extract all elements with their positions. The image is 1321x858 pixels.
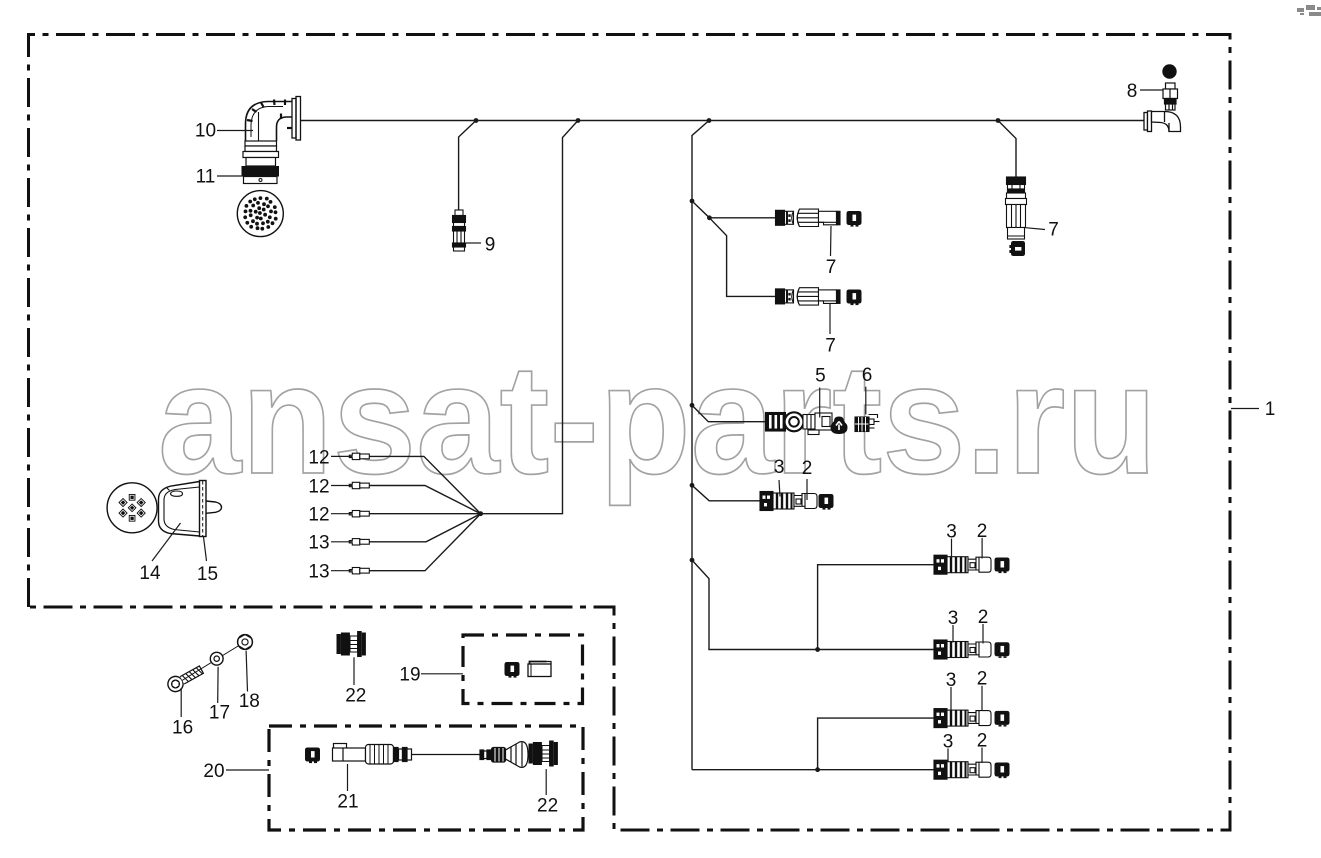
svg-text:15: 15 — [197, 564, 218, 585]
svg-text:2: 2 — [978, 607, 989, 628]
svg-text:17: 17 — [209, 703, 230, 724]
svg-text:18: 18 — [239, 691, 260, 712]
svg-text:7: 7 — [1048, 220, 1059, 241]
svg-text:14: 14 — [139, 563, 161, 584]
svg-text:3: 3 — [943, 732, 954, 753]
svg-text:11: 11 — [196, 167, 216, 188]
svg-text:13: 13 — [308, 562, 329, 583]
svg-text:6: 6 — [862, 365, 873, 386]
svg-text:3: 3 — [948, 608, 959, 629]
svg-text:8: 8 — [1127, 81, 1138, 102]
svg-text:21: 21 — [337, 792, 358, 813]
svg-text:12: 12 — [308, 505, 329, 526]
svg-text:22: 22 — [537, 796, 558, 817]
svg-text:22: 22 — [345, 686, 366, 707]
svg-text:2: 2 — [977, 521, 988, 542]
svg-text:2: 2 — [977, 731, 988, 752]
svg-text:2: 2 — [977, 669, 988, 690]
svg-text:2: 2 — [802, 458, 813, 479]
svg-text:1: 1 — [1265, 399, 1276, 420]
svg-text:13: 13 — [308, 533, 329, 554]
svg-text:16: 16 — [172, 718, 193, 739]
svg-text:5: 5 — [815, 366, 826, 387]
svg-text:3: 3 — [774, 457, 785, 478]
svg-text:10: 10 — [195, 121, 216, 142]
svg-text:7: 7 — [825, 336, 836, 357]
svg-text:20: 20 — [203, 761, 224, 782]
svg-text:7: 7 — [826, 257, 837, 278]
svg-text:12: 12 — [308, 477, 329, 498]
svg-text:3: 3 — [946, 670, 957, 691]
svg-text:12: 12 — [308, 448, 329, 469]
svg-text:3: 3 — [946, 522, 957, 543]
svg-text:19: 19 — [399, 665, 420, 686]
svg-text:9: 9 — [485, 235, 496, 256]
